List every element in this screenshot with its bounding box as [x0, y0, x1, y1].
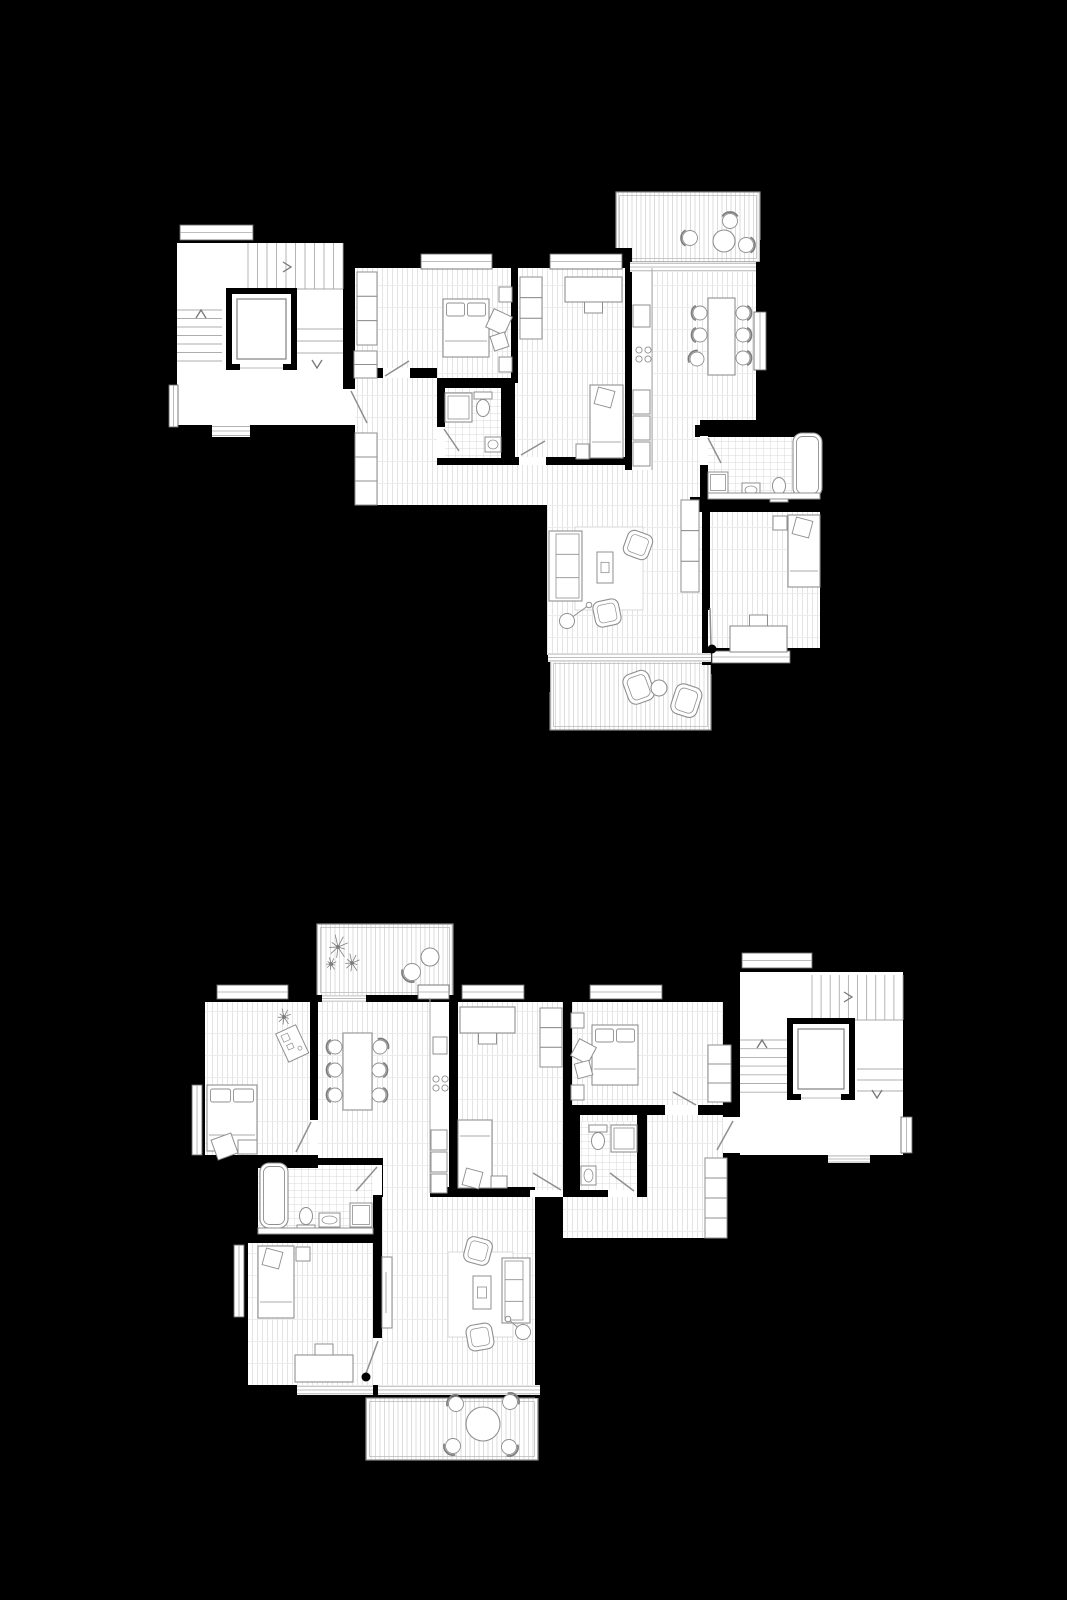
balcony-table	[466, 1407, 500, 1441]
balcony-top-deck	[616, 192, 760, 262]
dining-chair	[326, 1040, 342, 1055]
kitchen-cabinet	[633, 305, 650, 327]
bedroom-2-window	[234, 1245, 244, 1317]
dining-chair	[326, 1088, 342, 1103]
bedroom-3-door-opening	[665, 1105, 698, 1115]
living-left-wall	[540, 515, 547, 660]
stair-top-window	[742, 953, 812, 968]
hall-bottom-wall	[346, 505, 547, 515]
dining-chair	[736, 351, 752, 366]
coffee-table	[473, 1276, 491, 1309]
kitchen-cabinet	[433, 1037, 447, 1054]
balcony-left-stub	[537, 658, 550, 692]
dining-table	[343, 1033, 372, 1110]
bedroom-2-window	[550, 254, 622, 269]
single-bed	[258, 1246, 294, 1318]
balcony-top-stub	[760, 240, 774, 268]
balcony-chair	[681, 230, 698, 246]
study-door-opening	[530, 1190, 563, 1197]
nightstand	[571, 1085, 584, 1100]
bedroom-3-left-wall	[702, 512, 710, 610]
armchair	[592, 598, 623, 629]
bath-2-left-wall	[563, 1113, 580, 1197]
bedside-box	[238, 1140, 257, 1154]
bedroom-1-door-opening	[310, 1120, 318, 1155]
balcony-top-door	[630, 262, 756, 272]
double-bed	[443, 299, 489, 357]
elevator	[226, 288, 297, 370]
shower	[445, 393, 472, 422]
bedroom-3-window	[590, 985, 662, 999]
hall-bottom-wall	[535, 1238, 740, 1248]
balcony-table	[421, 948, 439, 966]
balcony-chair	[739, 237, 756, 253]
bedroom-3-wardrobe	[708, 1045, 731, 1102]
kitchen-cabinet	[431, 1174, 447, 1193]
single-bed	[788, 515, 820, 587]
kitchen-cabinet	[431, 1152, 447, 1172]
bath-counter	[708, 493, 820, 499]
dining-window	[754, 312, 766, 370]
dining-chair	[326, 1063, 342, 1078]
tv-bench	[382, 1257, 392, 1328]
living-right-wall	[535, 1238, 545, 1365]
column-dot	[708, 645, 717, 654]
bedroom-3-door	[710, 608, 711, 647]
bedside-box	[491, 1176, 507, 1188]
bath-2-door-opening	[608, 1190, 637, 1197]
kitchen-cabinet	[431, 1130, 447, 1150]
stair-right-window	[901, 1117, 912, 1153]
bedroom-2-balcony-window	[297, 1385, 373, 1395]
floor-plan-canvas: Two apartment floor plans, black backgro…	[0, 0, 1067, 1600]
bath-1-top-wall	[437, 378, 515, 388]
bath-1-bottom-wall	[437, 458, 517, 465]
dining-chair	[736, 306, 752, 321]
entry-closet	[354, 351, 377, 378]
sink	[581, 1166, 596, 1185]
kitchen-cabinet	[633, 390, 650, 414]
sink	[485, 437, 501, 452]
bedroom-2-bottom-wall	[248, 1385, 297, 1398]
single-bed	[458, 1120, 492, 1189]
nightstand	[499, 287, 512, 302]
bedroom-1-right-wall	[310, 1002, 318, 1120]
kitchen-cabinet	[633, 442, 650, 466]
armchair	[465, 1322, 495, 1352]
kitchen-cabinet	[633, 416, 650, 440]
bedroom-2-door-opening	[519, 457, 546, 465]
stair-bottom-wall	[172, 425, 355, 437]
hall-wardrobe	[705, 1158, 727, 1238]
bath-2-door-opening	[700, 436, 708, 465]
stair-bottom-wall	[723, 1155, 912, 1163]
hall-wardrobe	[355, 433, 377, 505]
single-bed	[590, 385, 623, 458]
dining-chair	[691, 328, 707, 343]
nightstand	[773, 516, 787, 530]
dining-chair	[372, 1063, 388, 1078]
nightstand	[571, 1013, 584, 1028]
step-wall	[756, 400, 830, 437]
bath-counter	[258, 1228, 373, 1234]
stair-exit-door	[212, 425, 250, 437]
balcony-side-table	[651, 680, 667, 696]
bedroom-3-right-wall	[731, 1002, 740, 1113]
divider-bed2-kitchen	[625, 268, 632, 470]
study-wardrobe	[540, 1008, 562, 1067]
stair-top-window	[180, 225, 253, 240]
dining-window	[418, 985, 449, 999]
sink	[319, 1213, 340, 1227]
dining-chair	[691, 306, 707, 321]
bedside-box	[576, 444, 589, 459]
shower	[611, 1125, 637, 1152]
dining-chair	[372, 1088, 388, 1103]
bedroom-1-left-window	[192, 1085, 202, 1155]
bedroom-1-wardrobe	[357, 272, 377, 345]
stair-exit-door	[828, 1155, 870, 1163]
bath-1-left-wall	[437, 388, 445, 428]
living-cabinet	[681, 500, 699, 592]
dining-floor	[318, 1002, 430, 1158]
nightstand	[296, 1247, 310, 1261]
bath-2-right-wall	[637, 1113, 647, 1197]
clothes-pile	[574, 1060, 592, 1078]
washing-machine	[350, 1203, 372, 1227]
kitchen-back-wall	[449, 998, 458, 1193]
living-balcony-door	[378, 1385, 540, 1395]
column-dot	[362, 1373, 371, 1382]
bath-1-left-wall	[248, 1162, 258, 1237]
double-bed	[592, 1025, 638, 1085]
sofa	[502, 1258, 530, 1323]
bedroom-1-window	[421, 254, 492, 269]
study-window	[462, 985, 524, 999]
bath-1-door-opening	[437, 427, 445, 458]
bedroom-2-door-opening	[373, 1338, 382, 1385]
bathtub	[793, 433, 822, 497]
bedroom-2-wardrobe	[520, 277, 542, 339]
dining-floor	[652, 272, 756, 420]
washing-machine	[708, 472, 728, 493]
bath-1-right-wall	[501, 383, 515, 465]
balcony-top-door	[322, 995, 366, 1002]
stair-left-window	[169, 385, 178, 427]
bath-2-bottom-wall	[563, 1190, 608, 1197]
nightstand	[499, 357, 512, 372]
balcony-table	[713, 230, 735, 252]
bedroom-3-window	[712, 651, 790, 663]
floor-plan-drawing	[0, 0, 1067, 1600]
bedroom-1-top-window	[217, 985, 288, 999]
balcony-chair	[722, 212, 738, 229]
dining-chair	[736, 328, 752, 343]
living-balcony-door	[548, 653, 711, 662]
dining-table	[708, 298, 735, 375]
coffee-table	[597, 552, 613, 583]
sofa	[549, 531, 582, 601]
bathtub	[260, 1163, 288, 1228]
